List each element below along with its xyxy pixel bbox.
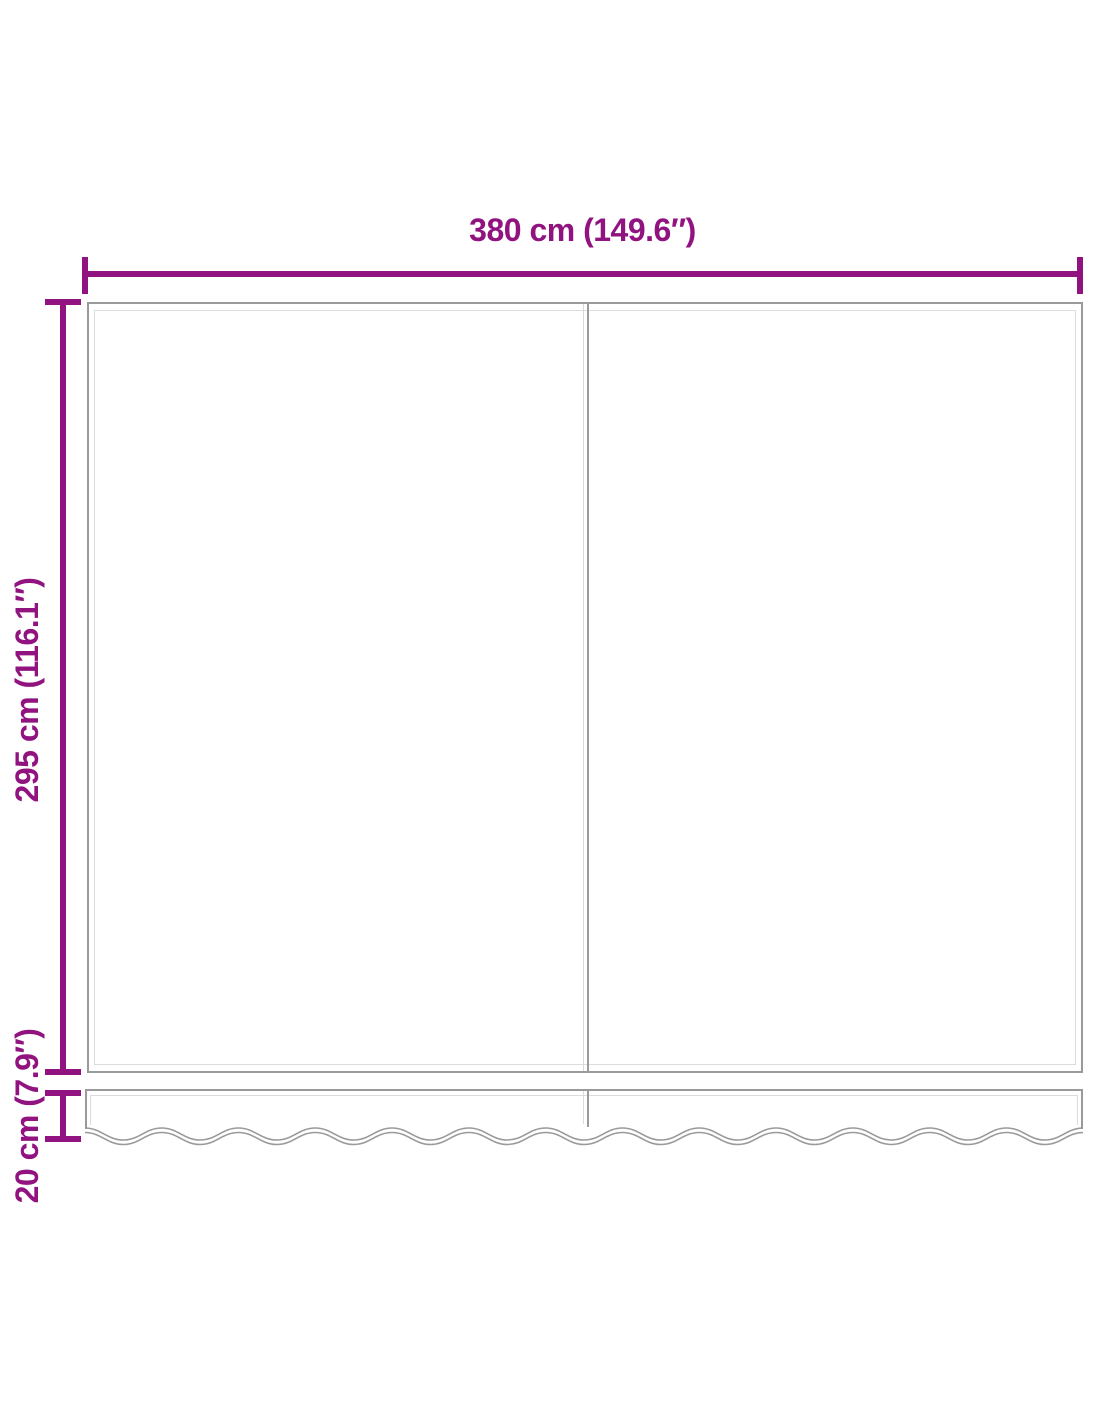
panel-seam-light-line <box>583 304 584 1071</box>
valance-left-inner-line <box>90 1095 91 1125</box>
width-dimension-line <box>85 271 1080 277</box>
valance-inner-top-line <box>90 1095 1078 1096</box>
panel-center-seam <box>587 304 589 1071</box>
dimension-diagram: 380 cm (149.6″) 295 cm (116.1″) 20 cm (7… <box>0 0 1100 1422</box>
valance-right-edge <box>1081 1089 1083 1129</box>
valance-right-inner-line <box>1077 1095 1078 1125</box>
valance-dimension-label: 20 cm (7.9″) <box>7 816 47 1416</box>
valance-top-edge <box>85 1089 1083 1091</box>
valance-dimension-top-tick <box>45 1090 81 1096</box>
width-dimension-left-tick <box>82 257 88 294</box>
valance-dimension-bottom-tick <box>45 1136 81 1142</box>
valance-strip <box>85 1089 1083 1149</box>
valance-dimension-line <box>60 1093 66 1139</box>
height-dimension-line <box>60 302 66 1072</box>
fabric-inner-stitch-line <box>94 310 1076 1065</box>
awning-fabric-panel <box>87 302 1083 1073</box>
valance-left-edge <box>85 1089 87 1129</box>
valance-wavy-edge <box>85 1126 1083 1148</box>
valance-seam-light-line <box>583 1091 584 1124</box>
width-dimension-label: 380 cm (149.6″) <box>85 212 1080 249</box>
valance-center-seam <box>587 1091 589 1127</box>
height-dimension-bottom-tick <box>45 1069 81 1075</box>
height-dimension-top-tick <box>45 299 81 305</box>
width-dimension-right-tick <box>1077 257 1083 294</box>
